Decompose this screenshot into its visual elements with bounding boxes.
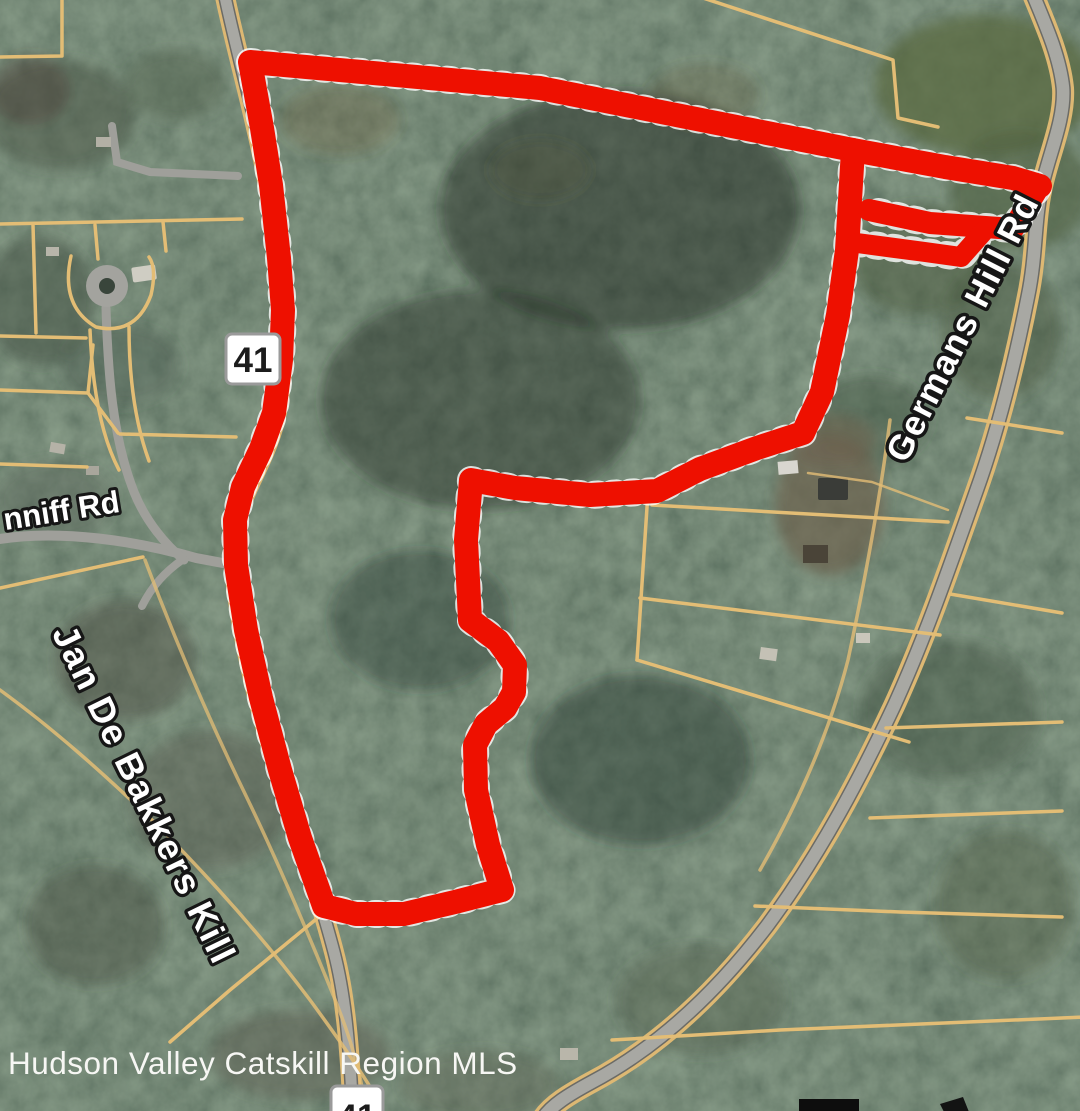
- aerial-map-canvas: Germans Hill Rd Jan De Bakkers Kill nnif…: [0, 0, 1080, 1111]
- map-view[interactable]: Germans Hill Rd Jan De Bakkers Kill nnif…: [0, 0, 1080, 1111]
- route-shield-top-number: 41: [234, 341, 273, 380]
- cul-de-sac-island: [99, 278, 115, 294]
- route-shield-bottom-number: 41: [338, 1098, 376, 1111]
- route-shield-top: 41: [226, 334, 280, 384]
- route-shield-bottom: 41: [331, 1086, 383, 1111]
- mls-watermark: Hudson Valley Catskill Region MLS: [8, 1045, 518, 1081]
